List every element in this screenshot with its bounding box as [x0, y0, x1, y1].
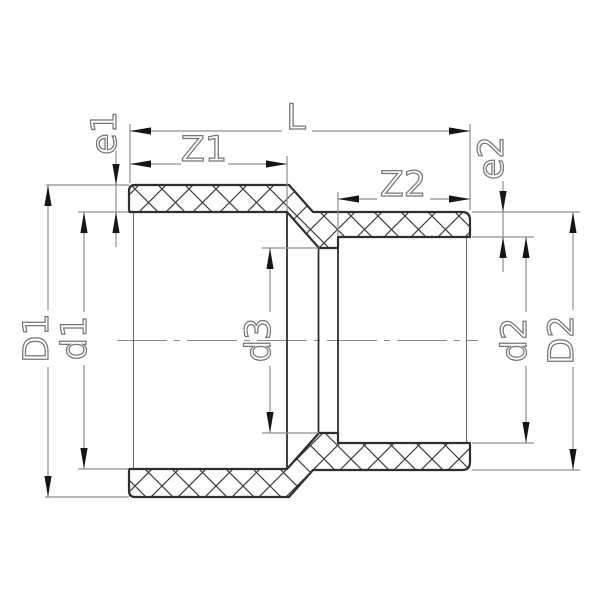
dimension-L-label: L: [286, 98, 306, 138]
dimension-Z2-label: Z2: [380, 165, 426, 205]
bottom-wall-section: [129, 433, 470, 497]
dimension-d3-label: d3: [239, 318, 279, 363]
arrowhead: [569, 449, 576, 470]
dimension-D2: D2: [542, 212, 582, 470]
arrowhead: [499, 191, 506, 212]
dimension-d3: d3: [239, 248, 279, 433]
dimension-e1: e1: [85, 111, 125, 247]
dimension-Z1: Z1: [130, 130, 287, 170]
arrowhead: [130, 160, 151, 167]
dimension-d2: d2: [495, 237, 535, 443]
dimension-d2-label: d2: [495, 318, 535, 363]
arrowhead: [266, 248, 273, 269]
dimension-e2-label: e2: [472, 136, 512, 180]
arrowhead: [449, 127, 470, 134]
dimension-e2: e2: [472, 136, 512, 272]
dimension-D1-label: D1: [17, 313, 57, 362]
arrowhead: [44, 476, 51, 497]
arrowhead: [130, 127, 151, 134]
arrowhead: [80, 212, 87, 233]
dimension-D2-label: D2: [542, 315, 582, 364]
arrowhead: [569, 212, 576, 233]
arrowhead: [338, 195, 359, 202]
dimension-d1-label: d1: [55, 316, 95, 361]
arrowhead: [522, 237, 529, 258]
dimension-e1-label: e1: [85, 111, 125, 155]
dimension-D1: D1: [17, 185, 57, 497]
arrowhead: [112, 164, 119, 185]
dimension-Z1-label: Z1: [181, 130, 227, 170]
technical-drawing: L Z1 Z2 e1 e2 D1: [0, 0, 600, 600]
arrowhead: [44, 185, 51, 206]
dimension-d1: d1: [55, 212, 95, 469]
arrowhead: [499, 237, 506, 258]
arrowhead: [522, 422, 529, 443]
arrowhead: [80, 448, 87, 469]
arrowhead: [449, 195, 470, 202]
arrowhead: [266, 160, 287, 167]
dimension-Z2: Z2: [338, 165, 470, 205]
arrowhead: [112, 212, 119, 233]
arrowhead: [266, 412, 273, 433]
